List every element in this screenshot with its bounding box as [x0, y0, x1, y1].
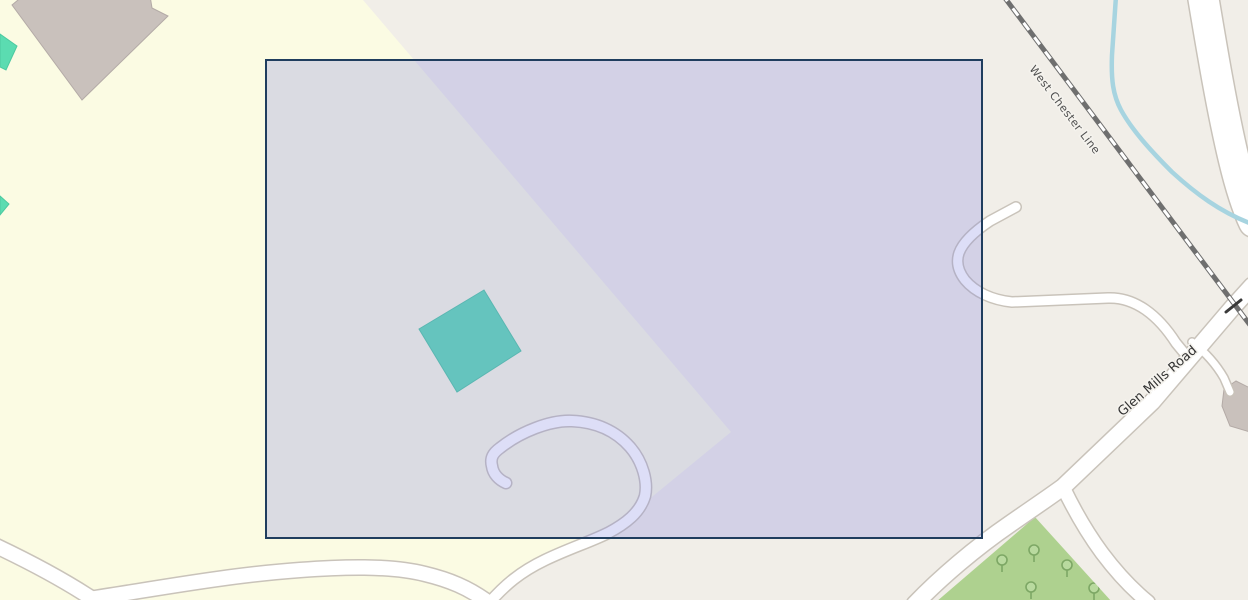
map-viewport[interactable]: West Chester Line Glen Mills Road: [0, 0, 1248, 600]
selection-rectangle[interactable]: [266, 60, 982, 538]
map-canvas[interactable]: West Chester Line Glen Mills Road: [0, 0, 1248, 600]
